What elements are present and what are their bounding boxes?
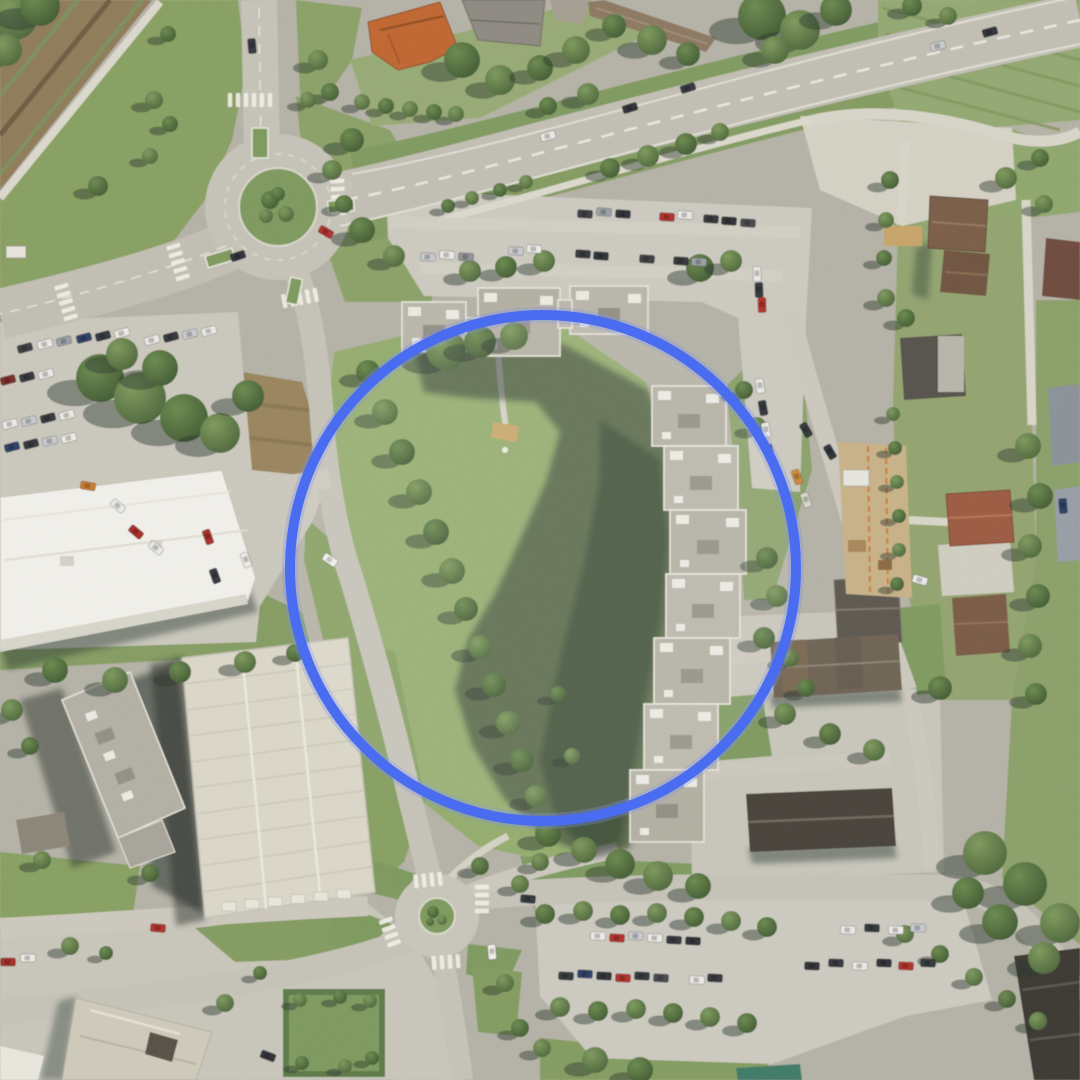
aerial-image	[0, 0, 1080, 1080]
map-viewport[interactable]	[0, 0, 1080, 1080]
highlight-circle-annotation	[290, 315, 796, 821]
annotation-layer	[290, 315, 796, 821]
